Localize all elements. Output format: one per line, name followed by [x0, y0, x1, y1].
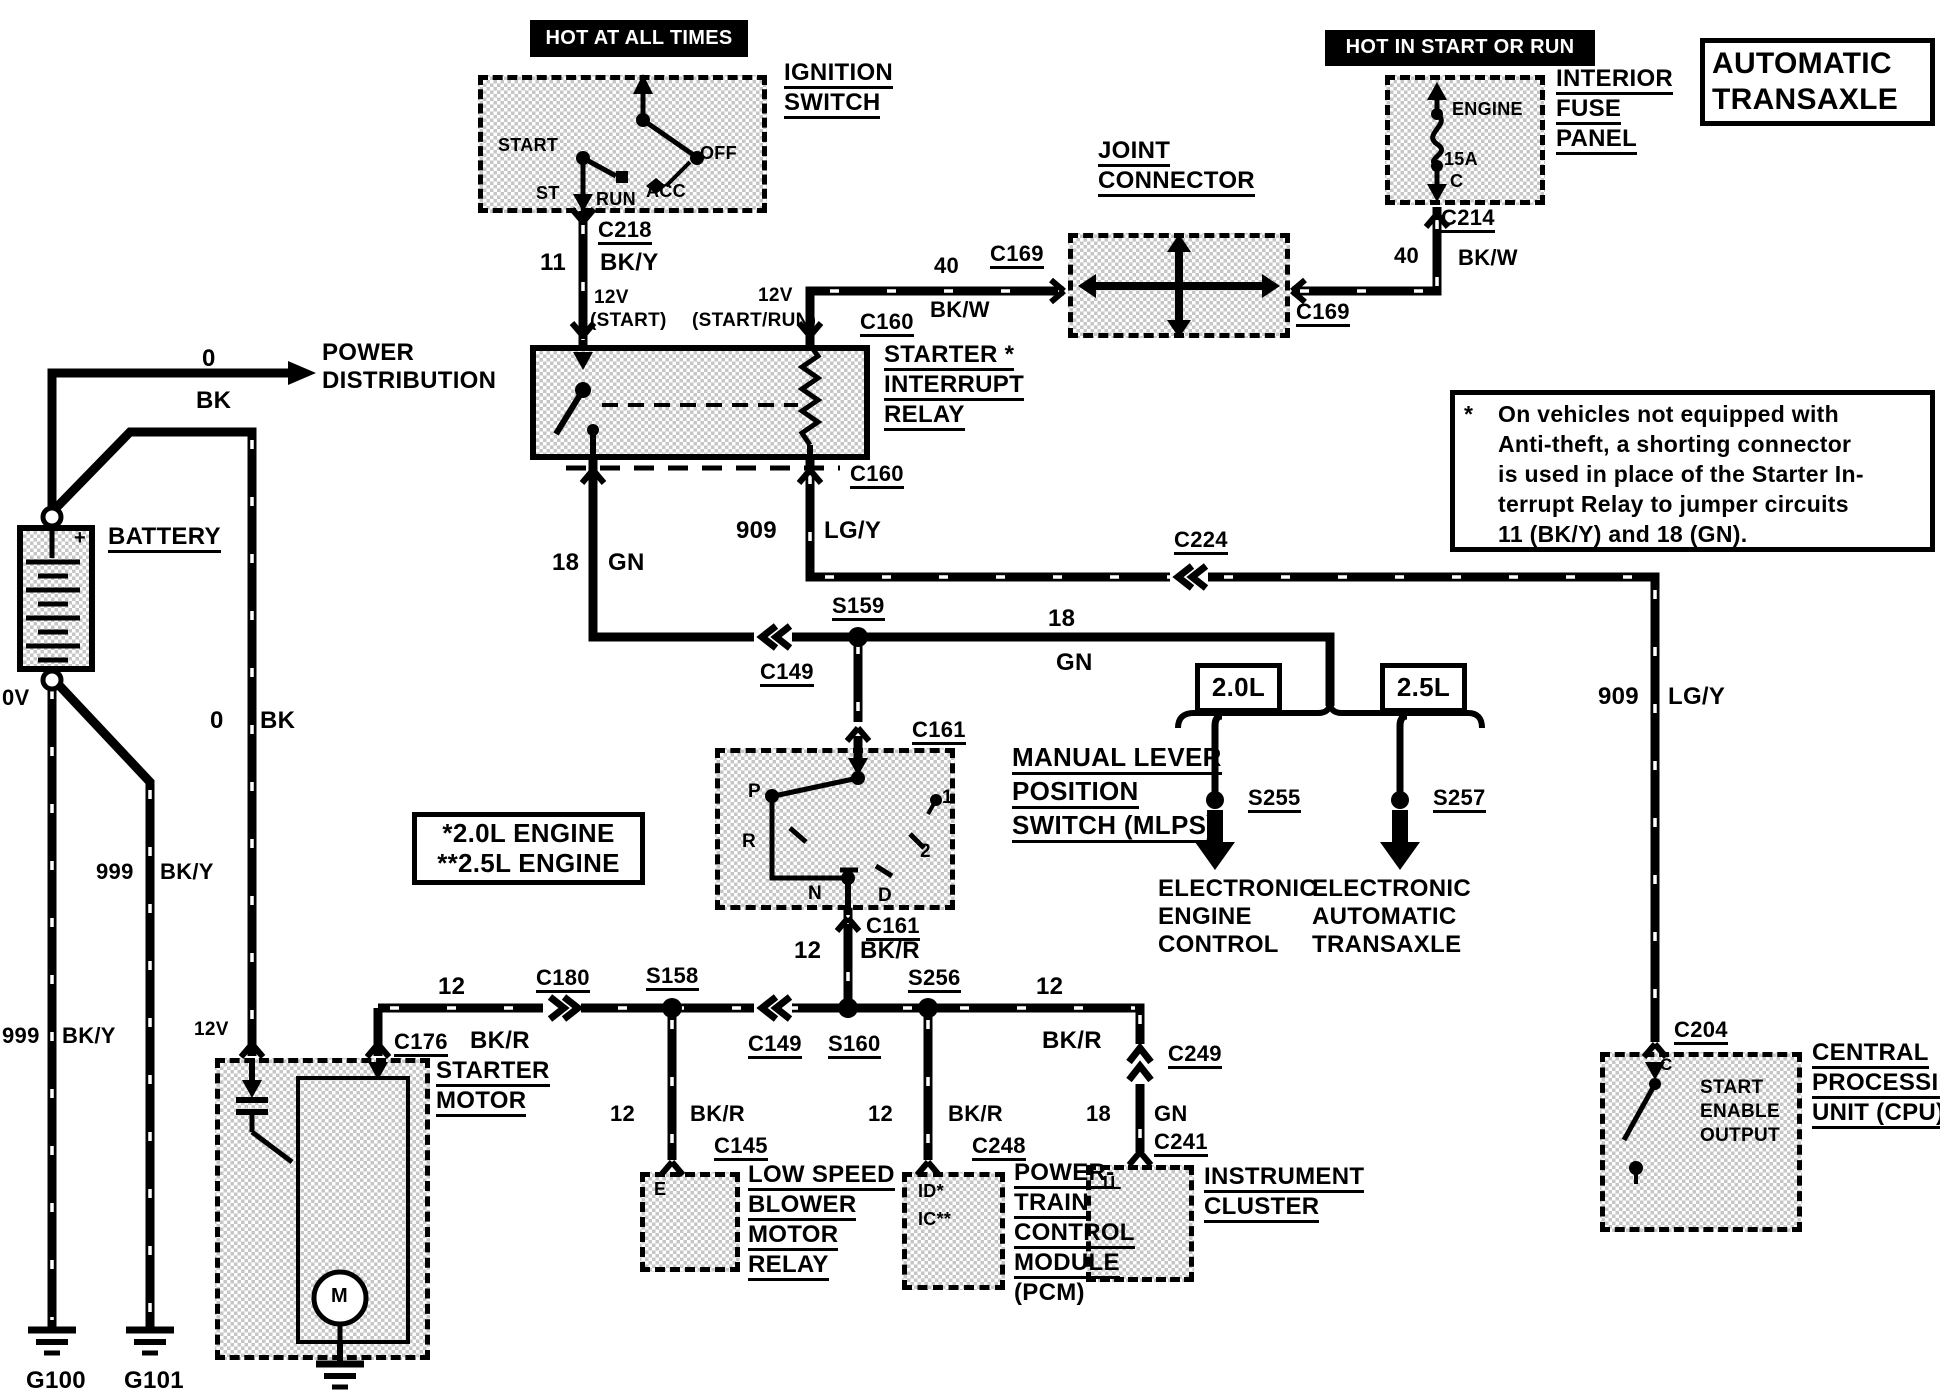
relay-label-1: STARTER * — [884, 342, 1014, 371]
cluster-1l: 1L — [1100, 1174, 1122, 1193]
cpu-output: OUTPUT — [1700, 1126, 1780, 1146]
blower-label-3: MOTOR — [748, 1222, 838, 1251]
relay-label-3: RELAY — [884, 402, 965, 431]
eec-label-3: CONTROL — [1158, 932, 1279, 957]
title-transaxle: TRANSAXLE — [1712, 84, 1898, 116]
wire-12-bus-left: 12 — [438, 974, 465, 999]
eat-label-2: AUTOMATIC — [1312, 904, 1456, 929]
cpu-c: C — [1660, 1056, 1673, 1074]
conn-c218: C218 — [598, 218, 652, 245]
wire-bkw-right: BK/W — [1458, 246, 1518, 269]
wire-bkr-bus-right: BK/R — [1042, 1028, 1102, 1053]
note-asterisk: * — [1464, 402, 1473, 426]
cpu-start: START — [1700, 1078, 1763, 1098]
blower-label-1: LOW SPEED — [748, 1162, 895, 1191]
ign-off: OFF — [700, 144, 737, 163]
pcm-label-5: (PCM) — [1014, 1280, 1085, 1305]
lbl-12v-start: 12V — [594, 288, 629, 308]
wire-gn-cluster: GN — [1154, 1102, 1188, 1125]
motor-m: M — [331, 1286, 348, 1307]
fuse-15a: 15A — [1444, 150, 1478, 169]
wire-12-pcm: 12 — [868, 1102, 893, 1125]
wire-11: 11 — [540, 250, 566, 275]
ign-acc: ACC — [646, 182, 686, 201]
wire-lgy-top: LG/Y — [824, 518, 881, 543]
ignition-switch-1: IGNITION — [784, 60, 893, 89]
conn-c249: C249 — [1168, 1042, 1222, 1069]
battery-plus: + — [74, 528, 86, 549]
wire-bkr-mlps: BK/R — [860, 938, 920, 963]
cpu-label-3: UNIT (CPU) — [1812, 1100, 1940, 1129]
blower-label-2: BLOWER — [748, 1192, 856, 1221]
wire-40-right: 40 — [1394, 244, 1419, 267]
wire-gn-left: GN — [608, 550, 645, 575]
wire-bk-mid: BK — [260, 708, 295, 733]
wire-gn-mid: GN — [1056, 650, 1093, 675]
hot-in-start-or-run: HOT IN START OR RUN — [1325, 37, 1595, 58]
battery-0v: 0V — [2, 686, 30, 709]
engine-variant-2: **2.5L ENGINE — [412, 850, 645, 877]
ign-start: START — [498, 136, 558, 155]
battery-label: BATTERY — [108, 524, 221, 553]
wire-18-left: 18 — [552, 550, 579, 575]
splice-s159: S159 — [832, 594, 885, 621]
conn-c161-top: C161 — [912, 718, 966, 745]
wire-bkw-left: BK/W — [930, 298, 990, 321]
wire-40-left: 40 — [934, 254, 959, 277]
wiring-diagram-page: HOT AT ALL TIMESHOT IN START OR RUNAUTOM… — [0, 0, 1940, 1392]
mlps-2: 2 — [920, 842, 931, 862]
cpu-label-2: PROCESSING — [1812, 1070, 1940, 1099]
conn-c149-bus: C149 — [748, 1032, 802, 1059]
wire-18-mid: 18 — [1048, 606, 1075, 631]
title-automatic: AUTOMATIC — [1712, 48, 1892, 80]
lbl-2-0l: 2.0L — [1195, 674, 1282, 701]
starter-motor-2: MOTOR — [436, 1088, 526, 1117]
interior-fuse-2: FUSE — [1556, 96, 1621, 125]
splice-s255: S255 — [1248, 786, 1301, 813]
wire-bky-b: BK/Y — [62, 1024, 116, 1047]
ground-g100: G100 — [26, 1368, 86, 1392]
wire-18-cluster: 18 — [1086, 1102, 1111, 1125]
note-line-5: 11 (BK/Y) and 18 (GN). — [1498, 522, 1747, 546]
lbl-2-5l: 2.5L — [1380, 674, 1467, 701]
starter-motor-1: STARTER — [436, 1058, 550, 1087]
ign-st: ST — [536, 184, 560, 203]
pcm-label-4: MODULE — [1014, 1250, 1120, 1279]
mlps-r: R — [742, 832, 756, 852]
cluster-label-1: INSTRUMENT — [1204, 1164, 1364, 1193]
fuse-engine: ENGINE — [1452, 100, 1523, 119]
pcm-id: ID* — [918, 1182, 944, 1201]
blower-label-4: RELAY — [748, 1252, 829, 1281]
conn-c160-bottom: C160 — [850, 462, 904, 489]
ign-run: RUN — [596, 190, 636, 209]
mlps-label-1: MANUAL LEVER — [1012, 744, 1222, 775]
power-distribution-1: POWER — [322, 340, 414, 365]
eec-label-1: ELECTRONIC — [1158, 876, 1317, 901]
splice-s257: S257 — [1433, 786, 1486, 813]
power-distribution-2: DISTRIBUTION — [322, 368, 496, 393]
wire-12-bus-right: 12 — [1036, 974, 1063, 999]
wire-12-blower: 12 — [610, 1102, 635, 1125]
eat-label-1: ELECTRONIC — [1312, 876, 1471, 901]
cpu-enable: ENABLE — [1700, 1102, 1780, 1122]
mlps-1: 1 — [942, 788, 953, 808]
conn-c248: C248 — [972, 1134, 1026, 1161]
note-line-2: Anti-theft, a shorting connector — [1498, 432, 1851, 456]
wire-bkr-pcm: BK/R — [948, 1102, 1003, 1125]
conn-c176: C176 — [394, 1030, 448, 1057]
conn-c160-top: C160 — [860, 310, 914, 337]
conn-c214: C214 — [1441, 206, 1495, 233]
mlps-p: P — [748, 782, 761, 802]
conn-c169-left: C169 — [990, 242, 1044, 269]
conn-c145: C145 — [714, 1134, 768, 1161]
wire-bky-top: BK/Y — [600, 250, 659, 275]
lbl-start-run: (START/RUN) — [692, 311, 816, 331]
eat-label-3: TRANSAXLE — [1312, 932, 1461, 957]
wire-909-right: 909 — [1598, 684, 1639, 709]
conn-c204: C204 — [1674, 1018, 1728, 1045]
wire-909-top: 909 — [736, 518, 777, 543]
mlps-d: D — [878, 886, 892, 906]
wire-999-b: 999 — [2, 1024, 40, 1047]
conn-c224: C224 — [1174, 528, 1228, 555]
wire-0-mid: 0 — [210, 708, 224, 733]
note-line-4: terrupt Relay to jumper circuits — [1498, 492, 1849, 516]
pcm-label-3: CONTROL — [1014, 1220, 1135, 1249]
wire-bk-top: BK — [196, 388, 231, 413]
wire-lgy-right: LG/Y — [1668, 684, 1725, 709]
wire-999-a: 999 — [96, 860, 134, 883]
mlps-n: N — [808, 884, 822, 904]
conn-c149-mid: C149 — [760, 660, 814, 687]
splice-s256: S256 — [908, 966, 961, 993]
lbl-12v-startrun: 12V — [758, 286, 793, 306]
conn-c180: C180 — [536, 966, 590, 993]
cpu-label-1: CENTRAL — [1812, 1040, 1929, 1069]
mlps-label-3: SWITCH (MLPS) — [1012, 812, 1215, 843]
engine-variant-1: *2.0L ENGINE — [412, 820, 645, 847]
fuse-c: C — [1450, 172, 1463, 191]
conn-c241: C241 — [1154, 1130, 1208, 1157]
splice-s158: S158 — [646, 964, 699, 991]
interior-fuse-3: PANEL — [1556, 126, 1637, 155]
wire-bkr-blower: BK/R — [690, 1102, 745, 1125]
ignition-switch-2: SWITCH — [784, 90, 880, 119]
note-line-1: On vehicles not equipped with — [1498, 402, 1839, 426]
wire-12-mlps: 12 — [794, 938, 821, 963]
joint-connector-1: JOINT — [1098, 138, 1170, 167]
mlps-label-2: POSITION — [1012, 778, 1139, 809]
lbl-12v-starter: 12V — [194, 1020, 229, 1040]
pcm-ic: IC** — [918, 1210, 951, 1229]
note-line-3: is used in place of the Starter In- — [1498, 462, 1864, 486]
hot-at-all-times: HOT AT ALL TIMES — [530, 28, 748, 49]
ground-g101: G101 — [124, 1368, 184, 1392]
wire-bkr-bus-left: BK/R — [470, 1028, 530, 1053]
eec-label-2: ENGINE — [1158, 904, 1252, 929]
splice-s160: S160 — [828, 1032, 881, 1059]
wiring-layer — [0, 0, 1940, 1392]
wire-bky-a: BK/Y — [160, 860, 214, 883]
joint-connector-2: CONNECTOR — [1098, 168, 1255, 197]
interior-fuse-1: INTERIOR — [1556, 66, 1673, 95]
lbl-start: (START) — [590, 311, 667, 331]
blower-e: E — [654, 1180, 666, 1199]
cluster-label-2: CLUSTER — [1204, 1194, 1319, 1223]
relay-label-2: INTERRUPT — [884, 372, 1024, 401]
conn-c169-right: C169 — [1296, 300, 1350, 327]
wire-0-top: 0 — [202, 346, 216, 371]
pcm-label-2: TRAIN — [1014, 1190, 1089, 1219]
